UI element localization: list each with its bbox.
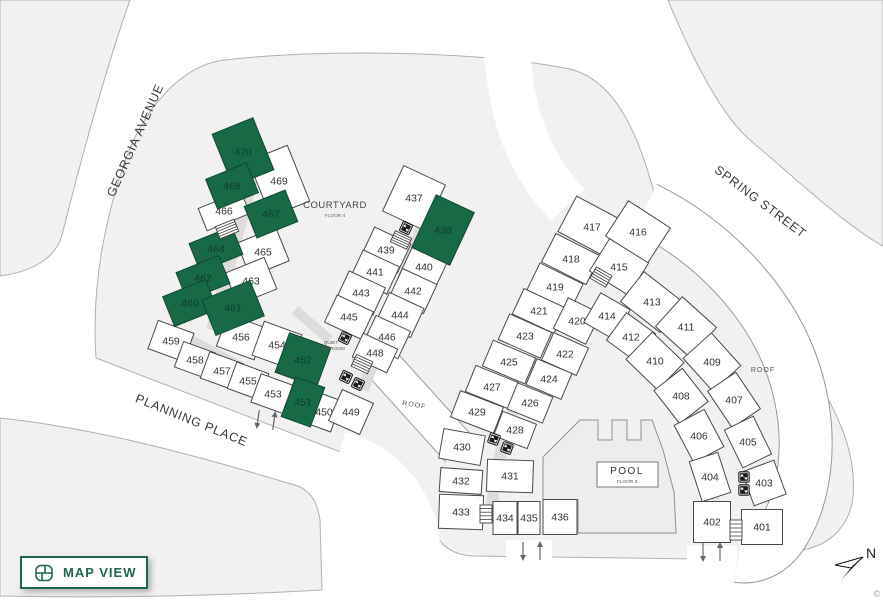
unit-label: 435 [520, 513, 538, 525]
unit-label: 445 [340, 312, 358, 324]
unit-label: 415 [610, 262, 628, 274]
unit-label: 461 [224, 303, 242, 315]
road-south-exit [340, 450, 423, 603]
pool-label: POOL [610, 466, 644, 477]
unit-label: 410 [646, 356, 664, 368]
attribution-mark: © [874, 589, 881, 599]
unit-label: 425 [500, 357, 518, 369]
unit-label: 418 [562, 254, 580, 266]
clubroom-label: QUIET [324, 340, 339, 346]
unit-label: 423 [516, 331, 534, 343]
unit-label: 464 [207, 244, 225, 256]
unit-label: 413 [643, 297, 661, 309]
pool-sublabel: FLOOR 2 [617, 479, 638, 485]
unit-label: 409 [703, 357, 721, 369]
unit-label: 442 [404, 286, 422, 298]
elevator-icon [738, 471, 749, 482]
unit-label: 427 [483, 382, 501, 394]
map-view-button[interactable]: MAP VIEW [20, 556, 148, 589]
unit-label: 406 [690, 431, 708, 443]
unit-label: 431 [501, 471, 519, 483]
unit-label: 458 [186, 355, 204, 367]
unit-label: 429 [468, 407, 486, 419]
stairs-icon [480, 505, 492, 523]
unit-label: 417 [583, 222, 601, 234]
unit-label: 468 [223, 181, 241, 193]
stairs-icon [730, 520, 742, 540]
unit-label: 443 [352, 288, 370, 300]
unit-label: 412 [622, 332, 640, 344]
unit-label: 404 [701, 472, 719, 484]
unit-label: 411 [678, 322, 695, 334]
unit-label: 438 [434, 225, 452, 237]
floorplan-icon [34, 563, 54, 583]
unit-label: 470 [234, 147, 252, 159]
unit-label: 467 [262, 209, 280, 221]
unit-label: 436 [551, 512, 569, 524]
unit-label: 405 [739, 437, 757, 449]
unit-label: 452 [294, 355, 312, 367]
unit-434[interactable]: 434 [493, 502, 517, 535]
courtyard-label: COURTYARD [303, 200, 367, 211]
elevator-icon [738, 484, 749, 495]
unit-label: 469 [270, 176, 288, 188]
unit-label: 426 [521, 398, 539, 410]
map-view-label: MAP VIEW [63, 565, 137, 580]
unit-433[interactable]: 433 [438, 494, 483, 530]
unit-436[interactable]: 436 [543, 500, 577, 535]
unit-label: 428 [506, 425, 524, 437]
clubroom-sublabel: CLUBROOM [317, 346, 345, 352]
unit-label: 439 [377, 245, 395, 257]
unit-label: 420 [568, 316, 586, 328]
unit-401[interactable]: 401 [742, 510, 783, 545]
unit-label: 449 [342, 407, 360, 419]
unit-label: 448 [366, 348, 384, 360]
unit-label: 402 [703, 517, 721, 529]
unit-431[interactable]: 431 [486, 459, 533, 493]
unit-label: 444 [391, 310, 409, 322]
unit-label: 457 [213, 366, 231, 378]
unit-402[interactable]: 402 [694, 502, 731, 543]
roof-label: ROOF [751, 367, 775, 374]
unit-label: 419 [546, 282, 564, 294]
unit-label: 424 [540, 374, 558, 386]
unit-label: 433 [452, 507, 470, 519]
unit-label: 453 [264, 389, 282, 401]
site-plan-canvas[interactable]: ROOFROOFPOOLFLOOR 2469466465463459458457… [0, 0, 883, 603]
unit-label: 421 [530, 306, 548, 318]
unit-label: 460 [181, 298, 199, 310]
unit-432[interactable]: 432 [439, 468, 483, 495]
unit-label: 403 [755, 478, 773, 490]
unit-435[interactable]: 435 [518, 502, 540, 535]
courtyard-sublabel: FLOOR 4 [325, 213, 346, 219]
unit-label: 456 [232, 332, 250, 344]
misc-layer: N© [835, 545, 881, 599]
unit-label: 437 [405, 193, 423, 205]
unit-label: 407 [725, 395, 743, 407]
unit-label: 416 [629, 227, 647, 239]
unit-label: 434 [496, 513, 514, 525]
unit-label: 440 [415, 262, 433, 274]
unit-label: 441 [366, 267, 384, 279]
unit-label: 465 [254, 247, 272, 259]
unit-label: 455 [239, 376, 257, 388]
unit-label: 408 [672, 391, 690, 403]
unit-label: 422 [556, 349, 574, 361]
unit-label: 459 [162, 336, 180, 348]
north-arrow-wing [835, 557, 863, 568]
unit-label: 401 [753, 522, 771, 534]
north-label: N [866, 545, 876, 561]
unit-label: 414 [598, 311, 616, 323]
unit-label: 451 [294, 397, 312, 409]
unit-label: 432 [452, 476, 470, 488]
unit-label: 430 [453, 442, 471, 454]
